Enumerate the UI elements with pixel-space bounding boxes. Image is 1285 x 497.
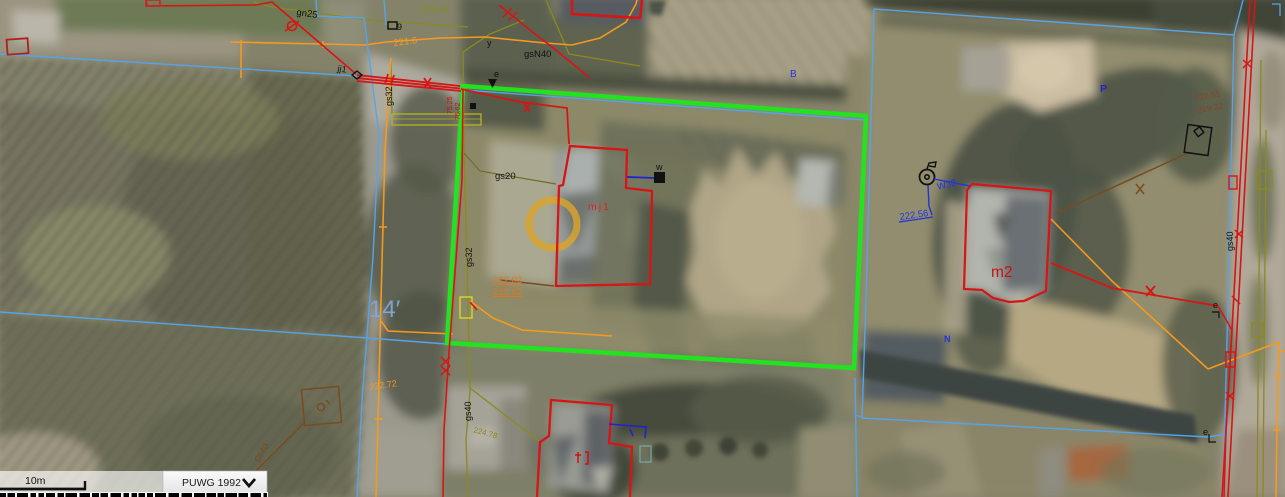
- svg-text:m2: m2: [991, 264, 1013, 281]
- svg-text:gs40: gs40: [1225, 231, 1235, 251]
- svg-text:14′: 14′: [369, 296, 401, 323]
- svg-text:222.02: 222.02: [493, 275, 522, 286]
- svg-text:y: y: [487, 38, 492, 48]
- svg-text:gsN40: gsN40: [524, 49, 551, 60]
- svg-text:75.62: 75.62: [455, 102, 462, 120]
- svg-text:9: 9: [397, 22, 402, 32]
- svg-text:PUWG 1992: PUWG 1992: [182, 477, 241, 489]
- svg-text:e: e: [494, 69, 499, 79]
- svg-text:gs32: gs32: [384, 86, 394, 106]
- svg-text:P: P: [1100, 83, 1107, 95]
- svg-text:e: e: [1213, 300, 1218, 310]
- svg-text:75.25: 75.25: [447, 96, 454, 114]
- svg-text:jj1: jj1: [336, 63, 348, 75]
- svg-text:B: B: [790, 69, 797, 80]
- svg-text:e: e: [1203, 427, 1208, 437]
- svg-text:222.16: 222.16: [420, 4, 449, 15]
- svg-text:10m: 10m: [25, 475, 46, 487]
- svg-text:gs32: gs32: [464, 247, 474, 267]
- svg-text:N: N: [944, 334, 951, 344]
- svg-text:mj1: mj1: [588, 201, 611, 213]
- svg-text:gs20: gs20: [495, 171, 516, 182]
- svg-text:gs40: gs40: [463, 401, 473, 421]
- svg-text:219.62: 219.62: [493, 287, 522, 298]
- svg-text:w: w: [655, 162, 663, 172]
